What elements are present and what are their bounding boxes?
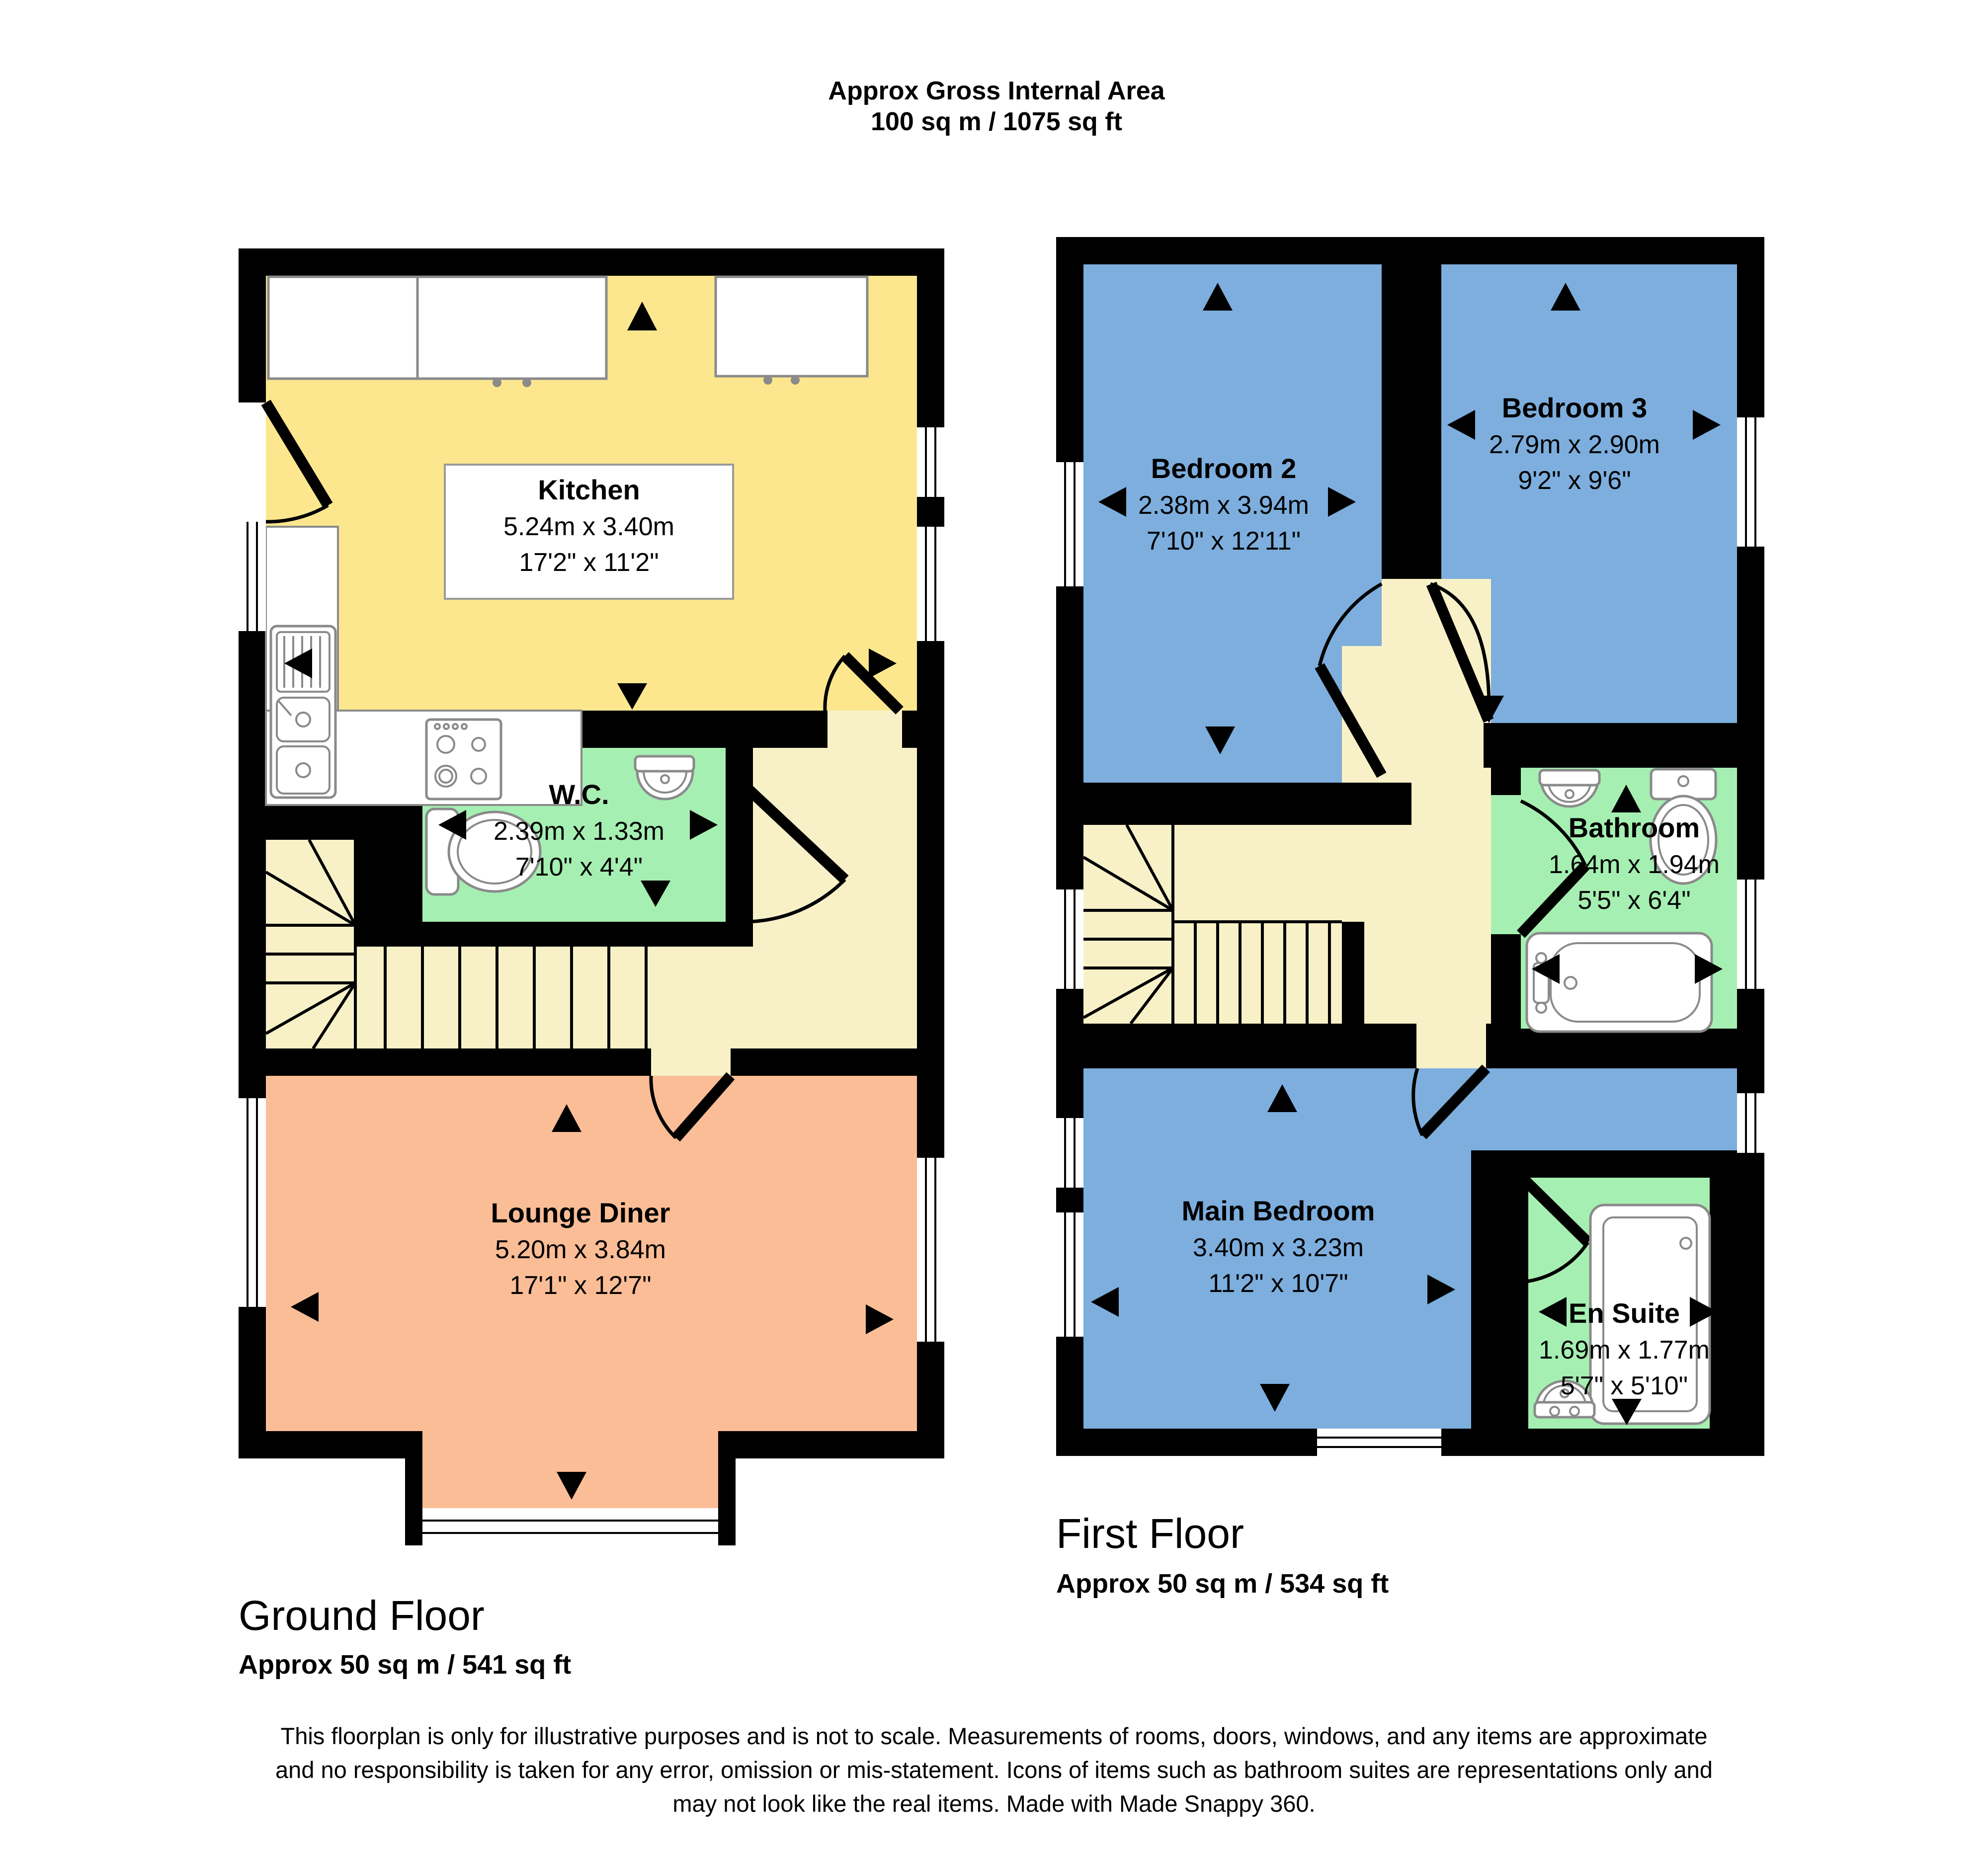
room-label: Main Bedroom bbox=[1182, 1195, 1375, 1226]
room-dim-metric: 1.69m x 1.77m bbox=[1539, 1336, 1710, 1365]
wall-b2-b3 bbox=[1382, 264, 1411, 579]
room-label: W.C. bbox=[549, 779, 609, 810]
header-title: Approx Gross Internal Area bbox=[828, 77, 1165, 105]
room-dim-imperial: 7'10" x 4'4" bbox=[515, 853, 643, 882]
room-dim-imperial: 5'5" x 6'4" bbox=[1577, 886, 1690, 915]
room-dim-imperial: 7'10" x 12'11" bbox=[1147, 527, 1301, 556]
wc-door-stub bbox=[726, 711, 753, 784]
wall-ensuite-left bbox=[1471, 1150, 1498, 1456]
wall-ensuite-top bbox=[1498, 1150, 1737, 1178]
header-area: 100 sq m / 1075 sq ft bbox=[871, 107, 1122, 136]
room-label: Bedroom 3 bbox=[1502, 392, 1648, 423]
room-dim-metric: 3.40m x 3.23m bbox=[1193, 1233, 1364, 1262]
room-label: Kitchen bbox=[538, 474, 640, 505]
room-dim-metric: 2.39m x 1.33m bbox=[494, 817, 664, 846]
hall-corridor bbox=[355, 947, 917, 1048]
window-icon bbox=[1737, 880, 1764, 989]
room-label: Bathroom bbox=[1569, 812, 1700, 843]
window-icon bbox=[1056, 1212, 1083, 1337]
room-dim-metric: 1.64m x 1.94m bbox=[1549, 850, 1720, 879]
bath-icon bbox=[1527, 933, 1712, 1032]
first-floor-area: Approx 50 sq m / 534 sq ft bbox=[1056, 1569, 1389, 1599]
room-dim-imperial: 17'1" x 12'7" bbox=[509, 1271, 651, 1300]
room-dim-imperial: 9'2" x 9'6" bbox=[1518, 466, 1631, 495]
disclaimer-line-3: may not look like the real items. Made w… bbox=[672, 1790, 1315, 1817]
room-dim-metric: 5.20m x 3.84m bbox=[495, 1235, 666, 1264]
room-dim-metric: 2.79m x 2.90m bbox=[1489, 430, 1660, 459]
bathroom-door-opening bbox=[1491, 795, 1521, 934]
disclaimer-line-1: This floorplan is only for illustrative … bbox=[281, 1723, 1708, 1749]
kitchen-cabinet-icon bbox=[268, 277, 417, 379]
front-door-opening bbox=[239, 402, 266, 522]
room-dim-metric: 5.24m x 3.40m bbox=[503, 512, 674, 541]
window-icon bbox=[1737, 1093, 1764, 1153]
hob-icon bbox=[426, 720, 501, 799]
lounge-door-opening bbox=[651, 1048, 731, 1076]
floorplan-canvas: Approx Gross Internal Area 100 sq m / 10… bbox=[0, 0, 1988, 1851]
first-floor-title: First Floor bbox=[1056, 1510, 1244, 1557]
room-dim-metric: 2.38m x 3.94m bbox=[1138, 491, 1309, 520]
ground-floor-area: Approx 50 sq m / 541 sq ft bbox=[239, 1650, 571, 1680]
kitchen-cabinet-icon bbox=[417, 277, 606, 379]
window-icon bbox=[1317, 1429, 1441, 1456]
room-label: Bedroom 2 bbox=[1151, 453, 1297, 484]
kitchen-cabinet-icon bbox=[716, 277, 867, 376]
first-floor-plan: Bedroom 2 2.38m x 3.94m 7'10" x 12'11" B… bbox=[1056, 237, 1764, 1456]
main-bedroom-corridor bbox=[1471, 1068, 1737, 1150]
cabinet-handle-icon bbox=[791, 376, 800, 385]
cabinet-handle-icon bbox=[522, 378, 531, 387]
window-icon bbox=[1737, 417, 1764, 547]
hall-stair-column bbox=[266, 840, 355, 1048]
window-icon bbox=[917, 527, 944, 641]
disclaimer-line-2: and no responsibility is taken for any e… bbox=[275, 1757, 1713, 1783]
window-icon bbox=[422, 1508, 718, 1545]
cabinet-handle-icon bbox=[763, 376, 772, 385]
window-icon bbox=[1056, 462, 1083, 586]
wall-b2-landing bbox=[1056, 783, 1411, 825]
room-dim-imperial: 5'7" x 5'10" bbox=[1561, 1371, 1688, 1400]
cabinet-handle-icon bbox=[493, 378, 501, 387]
window-icon bbox=[239, 517, 266, 631]
window-icon bbox=[917, 1158, 944, 1342]
room-label: Lounge Diner bbox=[491, 1197, 670, 1228]
landing-floor bbox=[1163, 825, 1491, 1024]
ground-floor-title: Ground Floor bbox=[239, 1592, 485, 1639]
hall-right bbox=[753, 748, 917, 957]
ground-floor-plan: Kitchen 5.24m x 3.40m 17'2" x 11'2" W.C.… bbox=[239, 248, 944, 1545]
wall-bathroom-bottom bbox=[1491, 1029, 1764, 1068]
mainbed-door-opening bbox=[1416, 1024, 1486, 1068]
room-dim-imperial: 11'2" x 10'7" bbox=[1208, 1269, 1348, 1298]
hall-kitchen-doorway bbox=[828, 711, 902, 750]
window-icon bbox=[239, 1098, 266, 1307]
window-icon bbox=[1056, 889, 1083, 989]
window-icon bbox=[1056, 1118, 1083, 1188]
window-icon bbox=[917, 427, 944, 497]
wall-b3-bathroom bbox=[1484, 723, 1764, 768]
room-label: En Suite bbox=[1569, 1297, 1680, 1329]
kitchen-sink-icon bbox=[271, 626, 335, 798]
room-dim-imperial: 17'2" x 11'2" bbox=[519, 548, 659, 577]
